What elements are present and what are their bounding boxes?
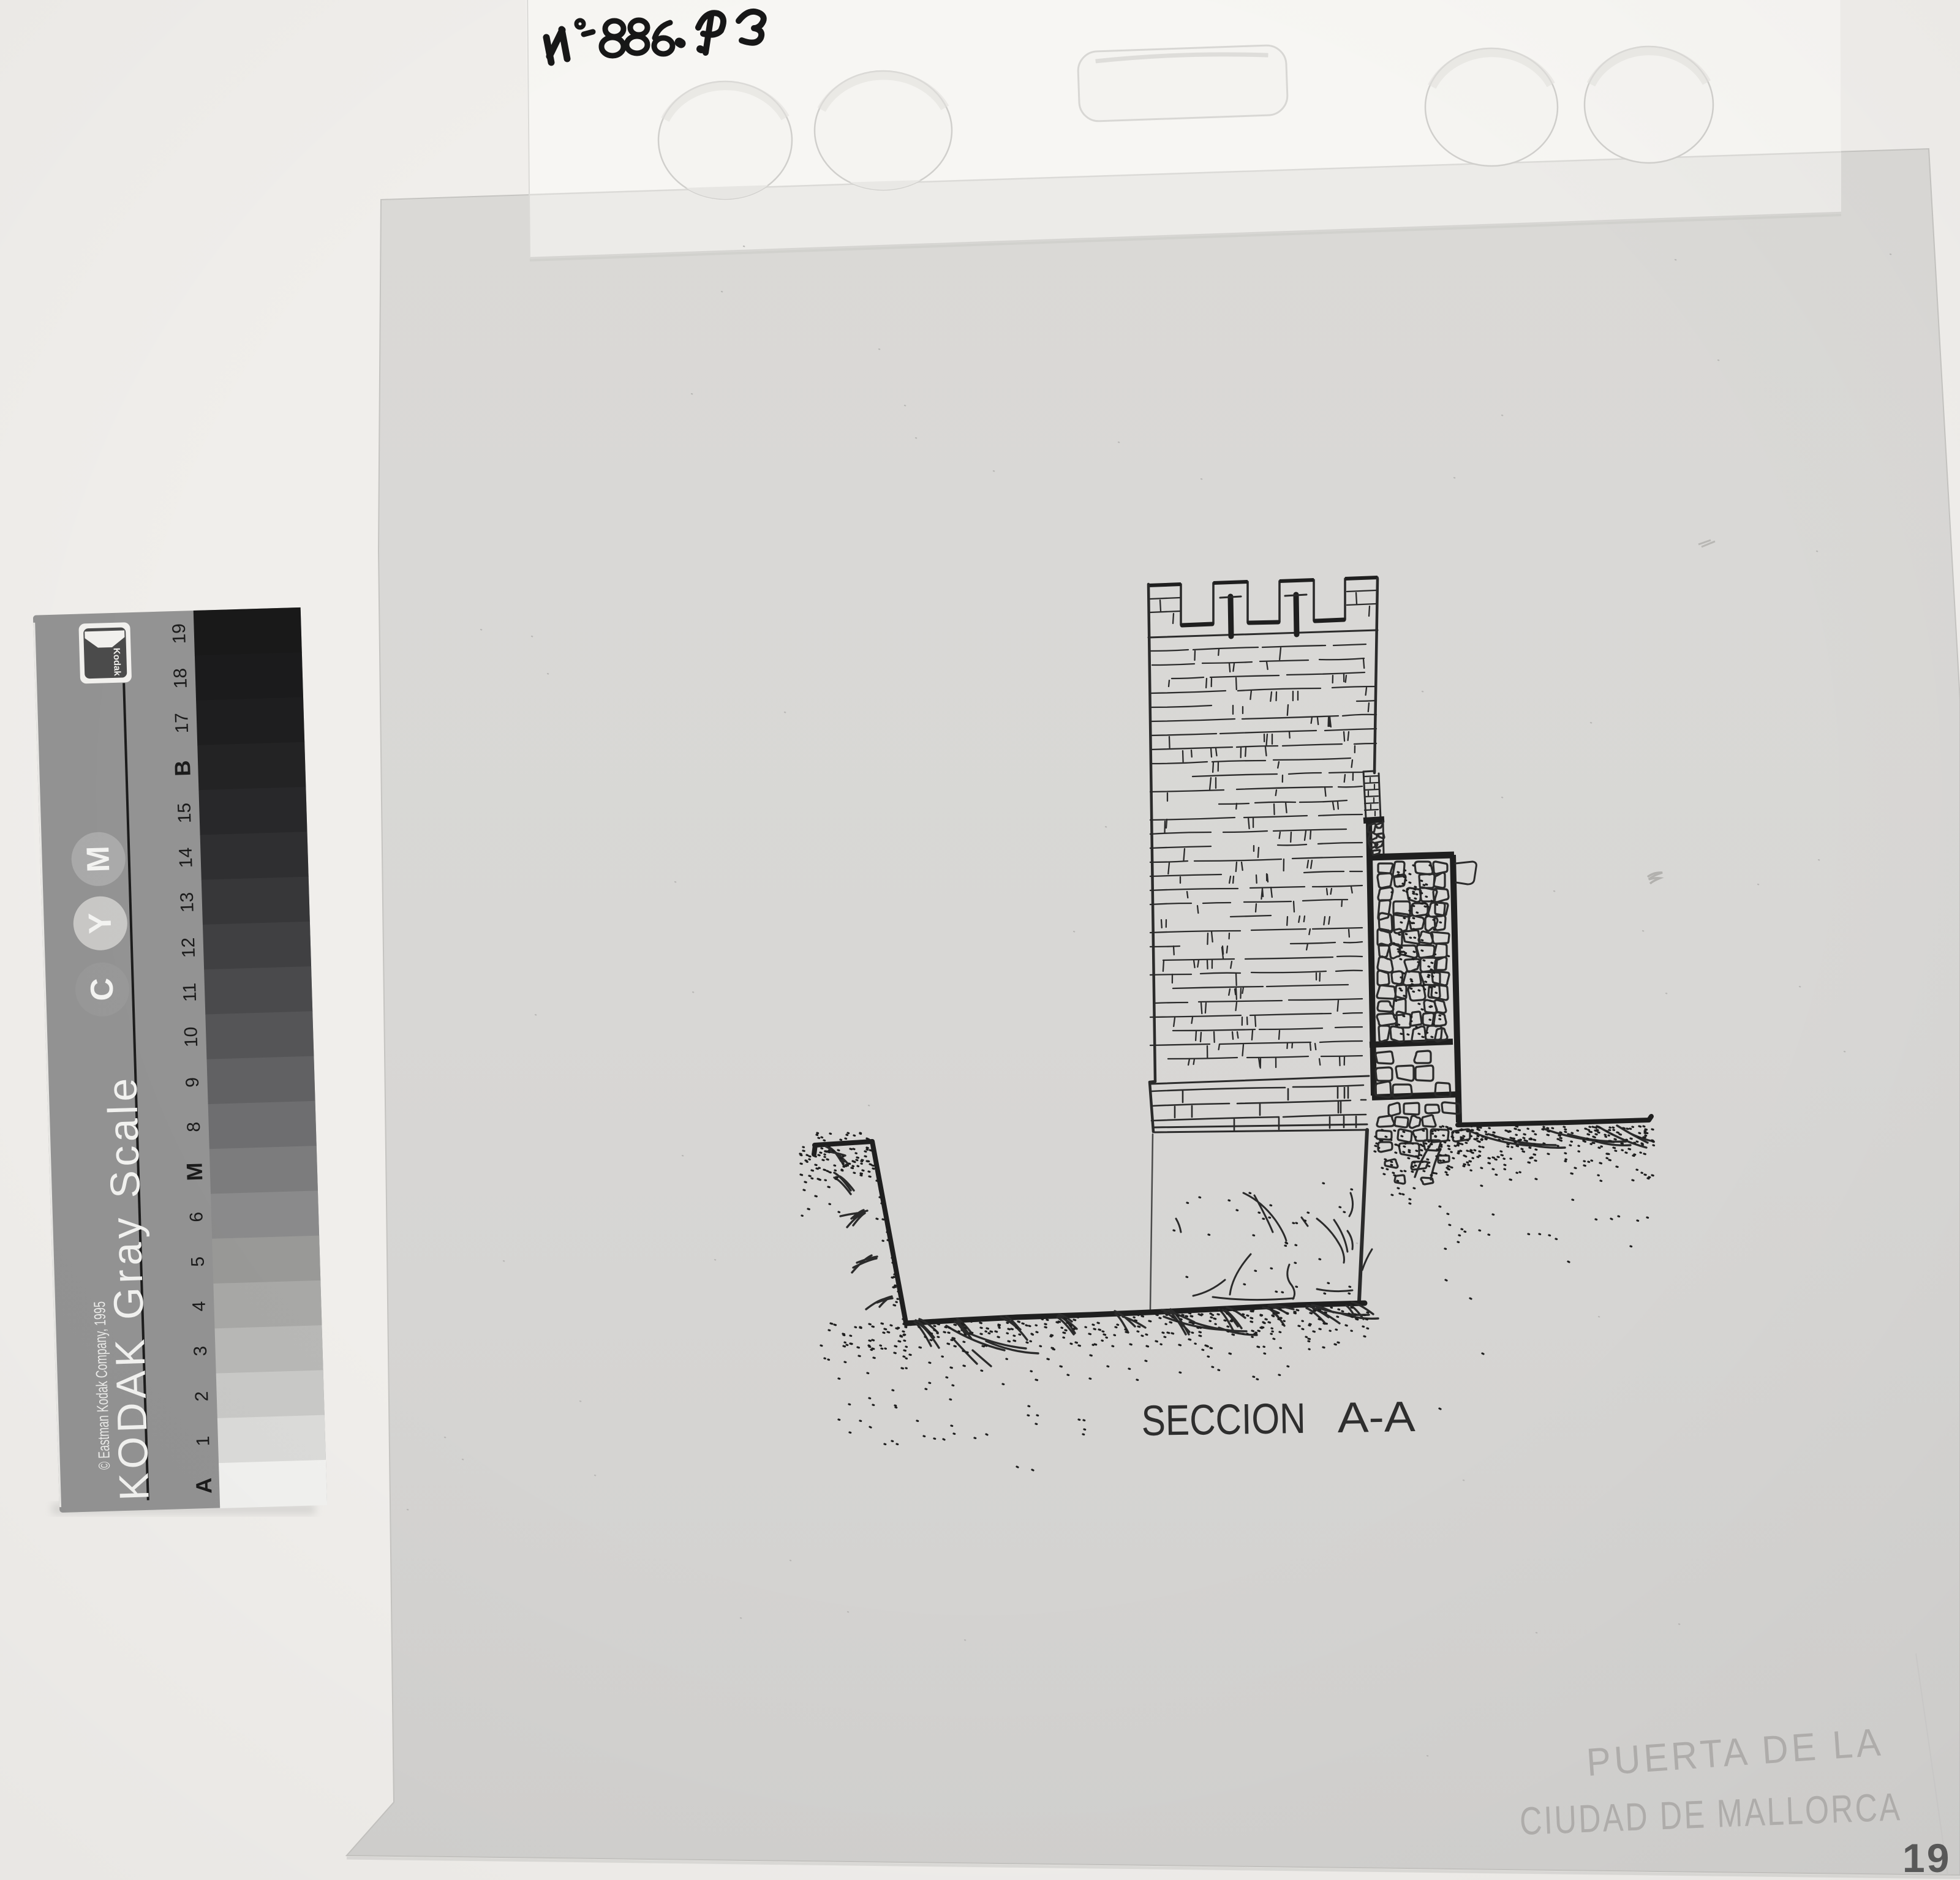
svg-text:19: 19 <box>1902 1835 1951 1880</box>
